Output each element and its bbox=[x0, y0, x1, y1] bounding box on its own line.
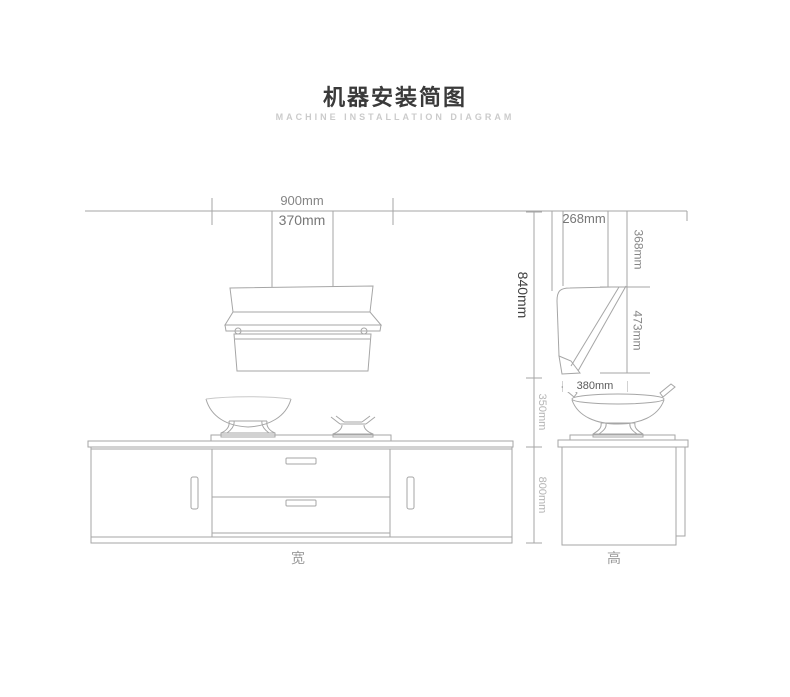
countertop-side bbox=[558, 440, 688, 447]
hood-lower-body bbox=[234, 334, 371, 371]
front-view-cooktop bbox=[206, 397, 391, 441]
dim-368mm-label: 368mm bbox=[632, 225, 645, 275]
front-view-cabinet bbox=[88, 441, 513, 543]
door-handle-left bbox=[191, 477, 198, 509]
side-hood-slant-panel bbox=[571, 286, 626, 371]
wok-side-rim bbox=[572, 394, 664, 404]
hood-visor-lip bbox=[225, 325, 381, 331]
side-cabinet-back-panel bbox=[676, 447, 685, 536]
dim-380mm-label: 380mm bbox=[563, 380, 627, 392]
wok-front bbox=[206, 399, 291, 427]
countertop-front bbox=[88, 441, 513, 447]
dim-268mm-label: 268mm bbox=[554, 212, 614, 226]
front-view-hood bbox=[225, 286, 381, 371]
drawer-handle-top bbox=[286, 458, 316, 464]
dim-840mm-label: 840mm bbox=[514, 265, 530, 325]
dim-350mm-label: 350mm bbox=[536, 388, 548, 436]
hood-visor bbox=[225, 312, 381, 325]
drawer-handle-bottom bbox=[286, 500, 316, 506]
side-hood-foot bbox=[559, 356, 580, 374]
axis-label-height: 高 bbox=[601, 551, 627, 566]
dim-473mm-label: 473mm bbox=[631, 306, 644, 356]
cooktop-panel bbox=[211, 435, 391, 441]
side-view-cabinet bbox=[558, 440, 688, 545]
page-root: 机器安装简图 MACHINE INSTALLATION DIAGRAM bbox=[0, 0, 790, 697]
side-view-cooktop bbox=[562, 384, 675, 440]
dim-900mm-label: 900mm bbox=[262, 194, 342, 208]
burner-right bbox=[331, 416, 375, 437]
diagram-linework bbox=[85, 198, 688, 545]
door-handle-right bbox=[407, 477, 414, 509]
dim-800mm-label: 800mm bbox=[536, 471, 548, 519]
dim-370mm-label: 370mm bbox=[262, 213, 342, 228]
diagram-canvas bbox=[0, 0, 790, 697]
hood-upper-panel bbox=[230, 286, 373, 312]
axis-label-width: 宽 bbox=[285, 551, 311, 566]
